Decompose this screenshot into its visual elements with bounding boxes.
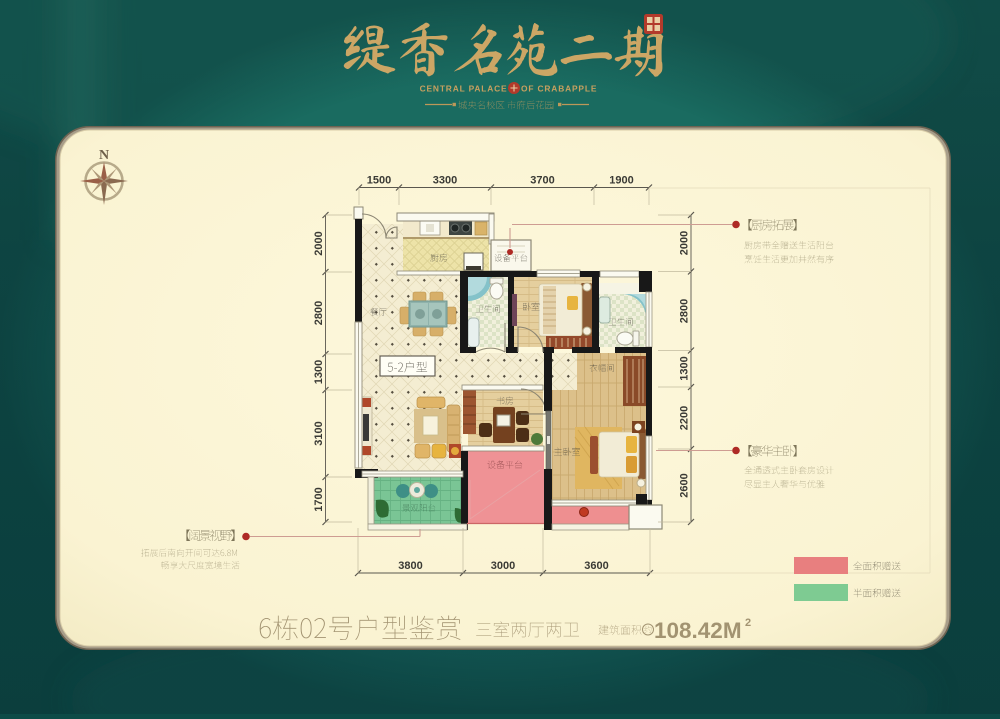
svg-text:2800: 2800 [313,301,325,325]
svg-text:2000: 2000 [679,231,691,255]
svg-text:2: 2 [745,617,751,629]
svg-text:2200: 2200 [679,406,691,430]
svg-text:3100: 3100 [313,421,325,445]
svg-text:1300: 1300 [679,356,691,380]
svg-text:1500: 1500 [367,175,391,187]
svg-text:3800: 3800 [398,560,422,572]
svg-text:3700: 3700 [530,175,554,187]
svg-text:1900: 1900 [609,175,633,187]
svg-text:3000: 3000 [491,560,515,572]
svg-text:1700: 1700 [313,487,325,511]
svg-text:OF CRABAPPLE: OF CRABAPPLE [521,84,597,94]
svg-text:2800: 2800 [679,299,691,323]
svg-text:N: N [99,148,109,163]
svg-text:3300: 3300 [433,175,457,187]
svg-text:CENTRAL PALACE: CENTRAL PALACE [420,84,508,94]
svg-text:108.42M: 108.42M [654,618,742,643]
svg-text:1300: 1300 [313,360,325,384]
svg-text:2000: 2000 [313,231,325,255]
svg-text:2600: 2600 [679,473,691,497]
svg-text:3600: 3600 [584,560,608,572]
